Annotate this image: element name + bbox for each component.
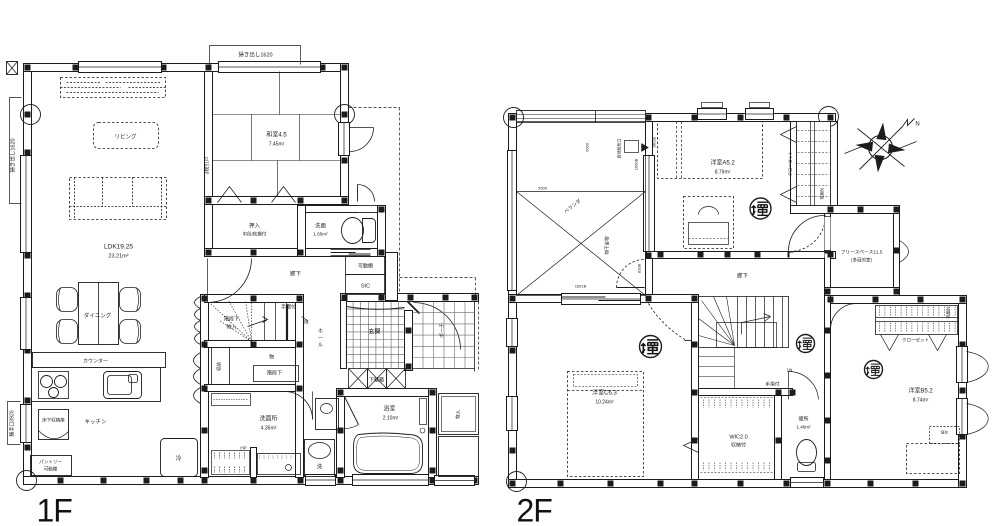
svg-text:洗: 洗 (317, 463, 323, 471)
svg-text:洗面: 洗面 (315, 222, 327, 230)
svg-text:8.74m²: 8.74m² (913, 398, 929, 404)
svg-text:物入: 物入 (455, 410, 462, 419)
svg-text:1.65m²: 1.65m² (313, 232, 328, 237)
svg-text:自然給気口: 自然給気口 (616, 139, 622, 159)
svg-text:掃き出し1620: 掃き出し1620 (238, 51, 272, 59)
svg-text:パントリー: パントリー (39, 460, 62, 465)
svg-text:ー: ー (318, 336, 323, 342)
svg-text:床下収納庫: 床下収納庫 (42, 417, 65, 424)
svg-text:4.35m²: 4.35m² (261, 426, 277, 432)
svg-text:N: N (915, 122, 919, 128)
svg-text:冷: 冷 (175, 455, 181, 463)
svg-text:物干金物: 物干金物 (604, 236, 611, 254)
svg-text:1601B: 1601B (653, 137, 657, 148)
svg-text:1600B: 1600B (634, 158, 639, 170)
svg-text:2000: 2000 (585, 142, 590, 152)
svg-text:クローゼット: クローゼット (902, 337, 929, 344)
svg-text:可動棚: 可動棚 (358, 263, 373, 270)
svg-text:枕棚付: 枕棚付 (819, 188, 825, 200)
svg-text:中段/枕棚付: 中段/枕棚付 (243, 231, 267, 238)
svg-text:キッチン: キッチン (84, 419, 107, 426)
svg-text:和室4.5: 和室4.5 (266, 131, 287, 139)
svg-text:可動棚: 可動棚 (44, 466, 58, 473)
svg-text:洗面所: 洗面所 (259, 415, 277, 423)
svg-text:物入: 物入 (226, 324, 236, 331)
svg-text:2.10m²: 2.10m² (383, 416, 399, 422)
svg-text:収納: 収納 (216, 362, 223, 371)
svg-text:収納付: 収納付 (731, 442, 746, 449)
svg-text:下駄箱: 下駄箱 (369, 377, 384, 384)
svg-text:便所: 便所 (798, 416, 808, 423)
svg-text:廊下: 廊下 (290, 270, 302, 278)
svg-text:洋室C6.3: 洋室C6.3 (592, 389, 617, 397)
svg-text:押入: 押入 (249, 222, 261, 230)
svg-text:2F: 2F (517, 493, 553, 526)
svg-text:1501B: 1501B (575, 284, 587, 289)
svg-text:手摺付: 手摺付 (765, 381, 780, 388)
svg-text:23.21m²: 23.21m² (108, 254, 128, 260)
svg-text:810B: 810B (637, 263, 642, 273)
svg-text:ポーチ: ポーチ (439, 323, 446, 338)
svg-text:階段下: 階段下 (267, 370, 282, 377)
svg-text:寝台: 寝台 (941, 430, 949, 435)
svg-text:1F: 1F (37, 493, 73, 526)
svg-text:洋室A5.2: 洋室A5.2 (710, 159, 735, 167)
svg-text:カウンター: カウンター (83, 358, 108, 365)
svg-text:(多目的室): (多目的室) (851, 257, 872, 264)
svg-text:HP: HP (240, 446, 246, 451)
svg-text:ダイニング: ダイニング (84, 312, 112, 320)
svg-text:クローゼット: クローゼット (787, 151, 794, 176)
svg-text:WIC2.0: WIC2.0 (729, 435, 747, 441)
svg-text:ル: ル (318, 343, 323, 349)
svg-text:廊下: 廊下 (737, 272, 749, 280)
svg-text:8.79m²: 8.79m² (715, 170, 731, 176)
svg-text:掃き出し1620: 掃き出し1620 (9, 138, 17, 172)
svg-text:浴室: 浴室 (383, 405, 395, 413)
svg-text:2000: 2000 (538, 186, 548, 191)
svg-text:洋室B5.2: 洋室B5.2 (908, 387, 933, 395)
svg-text:勝手口0920: 勝手口0920 (9, 410, 16, 436)
svg-text:10.24m²: 10.24m² (595, 400, 614, 406)
svg-text:3枚引戸: 3枚引戸 (204, 157, 211, 175)
svg-text:7.45m²: 7.45m² (269, 142, 285, 148)
svg-text:物: 物 (269, 354, 274, 361)
svg-text:手摺付: 手摺付 (281, 304, 296, 311)
svg-text:降: 降 (304, 319, 309, 326)
svg-text:フリースペース11.5: フリースペース11.5 (841, 250, 883, 256)
svg-text:リビング: リビング (114, 133, 137, 141)
svg-text:ホ: ホ (318, 329, 323, 335)
svg-text:階段下: 階段下 (224, 316, 239, 323)
svg-text:SIC: SIC (361, 284, 370, 290)
svg-text:枕棚付: 枕棚付 (945, 307, 951, 319)
svg-text:玄関: 玄関 (368, 328, 380, 336)
svg-text:1.46m²: 1.46m² (796, 425, 811, 430)
svg-text:LDK19.25: LDK19.25 (104, 244, 133, 251)
